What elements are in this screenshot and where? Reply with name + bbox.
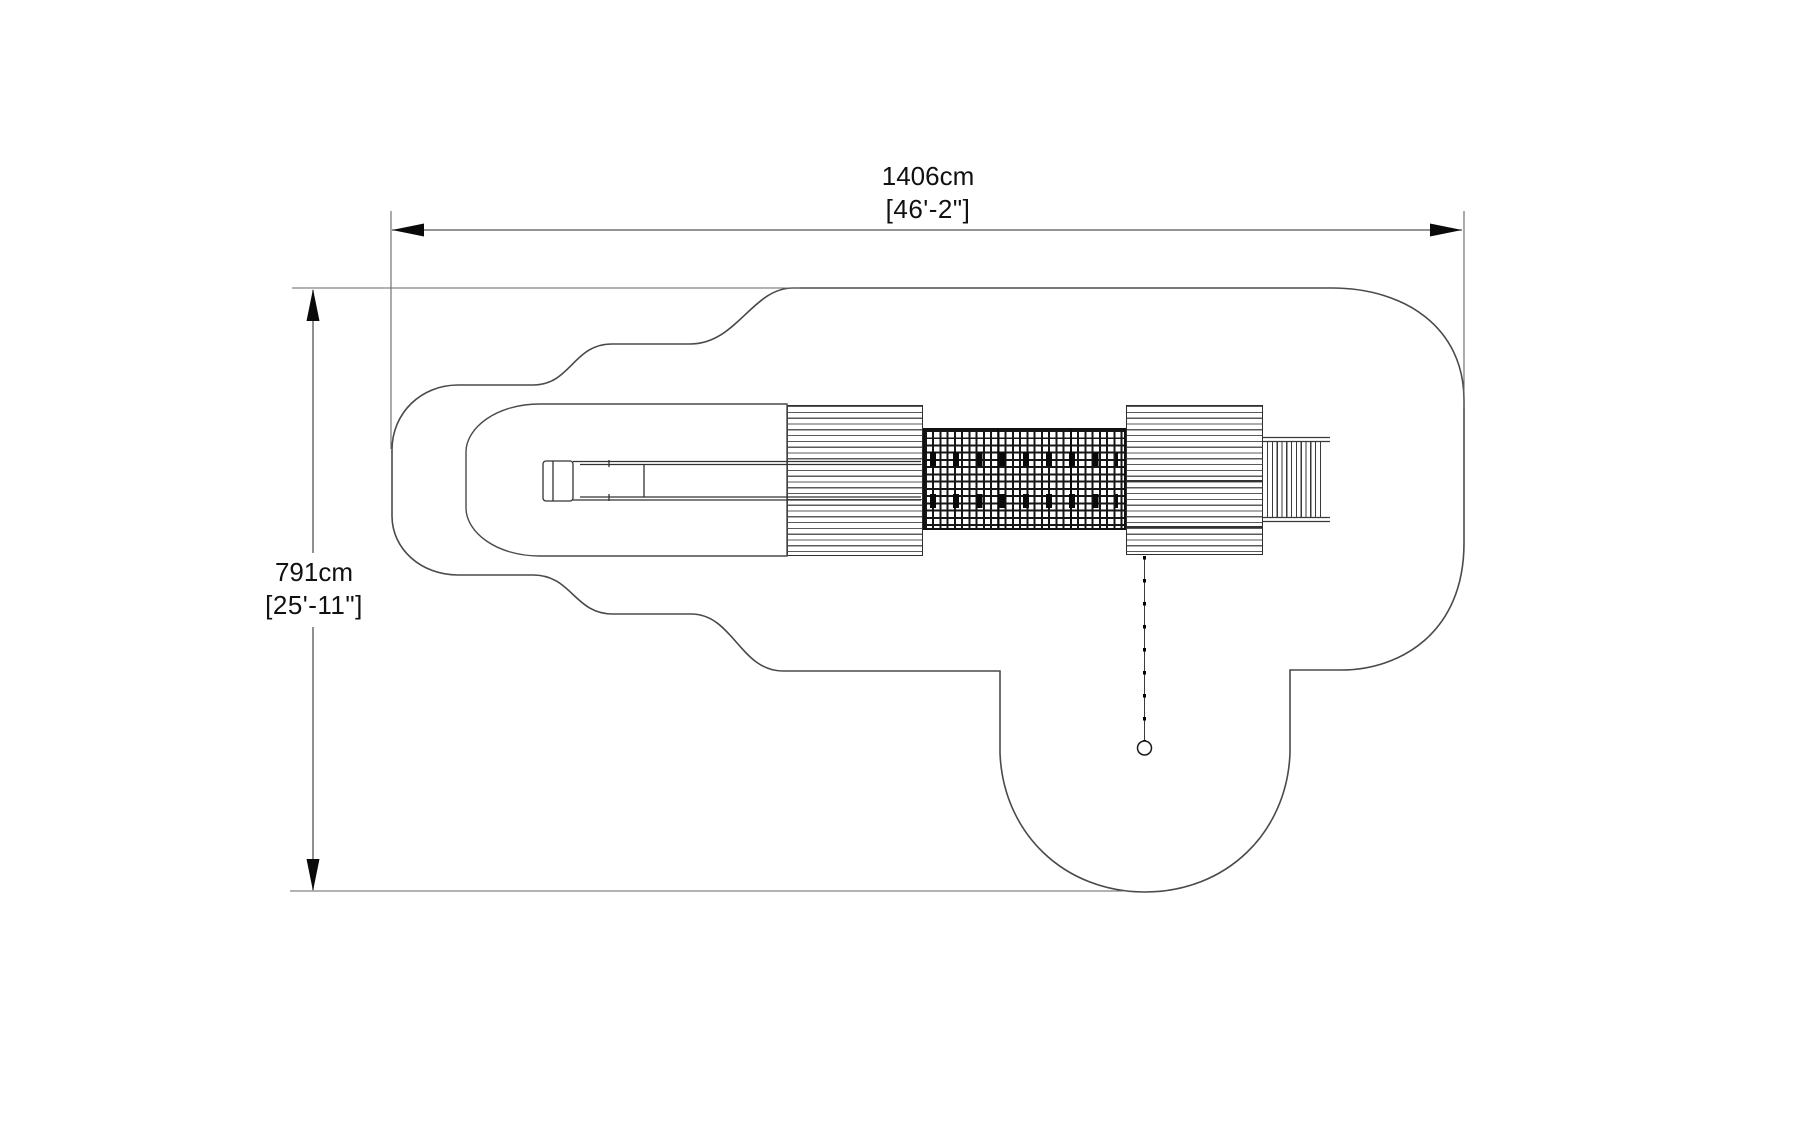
safety-surface-boundary (392, 288, 1464, 892)
swing-seat-circle (1138, 741, 1152, 755)
ramp-panel-left (787, 405, 923, 556)
arrow-left-icon (392, 224, 424, 237)
arrow-right-icon (1430, 224, 1462, 237)
slide-zone-outline (466, 404, 787, 556)
arrow-up-icon (307, 289, 320, 321)
slide-end-cap (543, 461, 573, 501)
panel-edge-line (1127, 526, 1262, 528)
width-dimension (391, 211, 1464, 449)
swing-drop-line-dots (1143, 556, 1146, 741)
width-dimension-metric-label: 1406cm (828, 161, 1028, 192)
width-dimension-imperial-label: [46'-2"] (828, 194, 1028, 225)
net-climber-bridge (923, 428, 1126, 530)
ladder-rungs (1267, 442, 1324, 518)
height-dimension (290, 288, 1130, 891)
net-link-row (930, 452, 1118, 466)
net-panel-divider (1070, 430, 1072, 528)
net-link-row (930, 494, 1118, 508)
plan-drawing-canvas: 1406cm [46'-2"] 791cm [25'-11"] (0, 0, 1800, 1124)
panel-edge-line (1127, 480, 1262, 482)
height-dimension-imperial-label: [25'-11"] (214, 590, 414, 621)
height-dimension-metric-label: 791cm (214, 557, 414, 588)
net-panel-divider (997, 430, 999, 528)
arrow-down-icon (307, 859, 320, 891)
ramp-panel-right (1126, 405, 1263, 555)
